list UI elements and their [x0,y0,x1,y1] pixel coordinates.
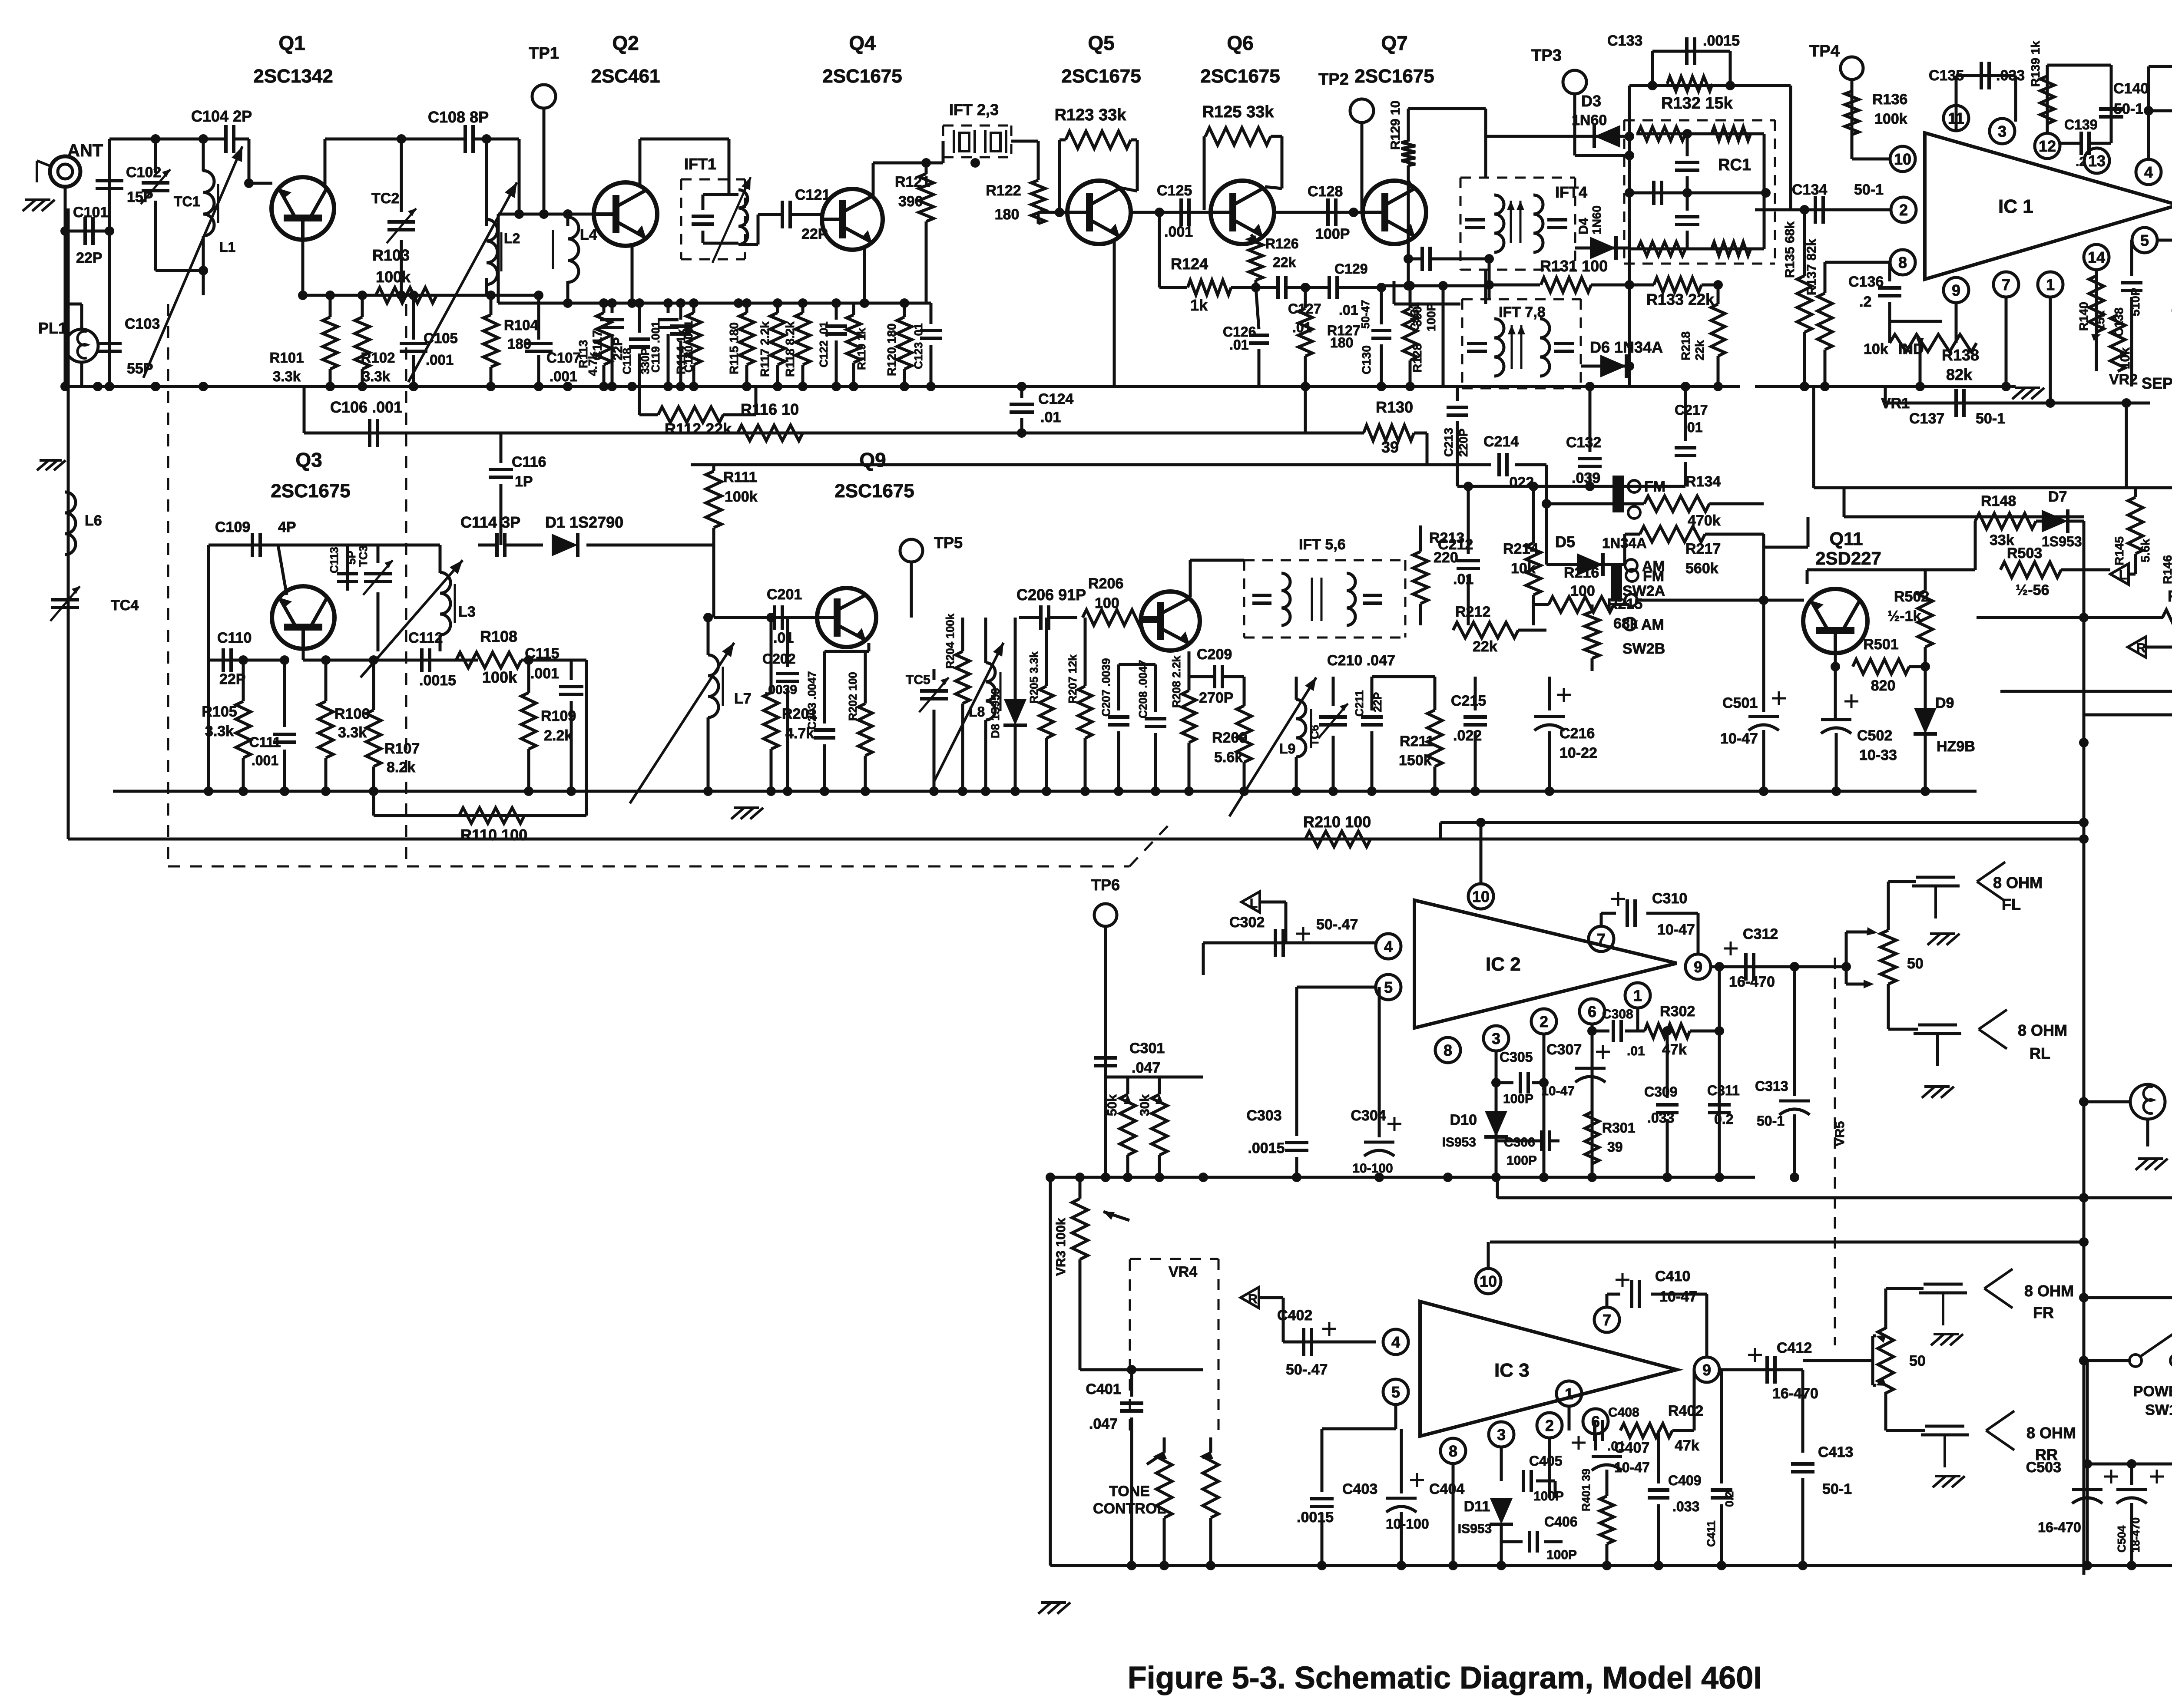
svg-text:R148: R148 [1981,493,2016,509]
svg-text:820: 820 [1871,677,1896,694]
svg-text:8: 8 [1898,254,1907,271]
svg-text:R139 1k: R139 1k [2029,41,2042,87]
svg-text:5: 5 [1384,978,1393,996]
svg-text:C120 .001: C120 .001 [682,320,695,373]
svg-text:7: 7 [2002,276,2010,294]
svg-text:R302: R302 [1660,1003,1695,1020]
svg-text:R: R [1248,1292,1258,1306]
svg-text:2SC1675: 2SC1675 [822,66,902,87]
svg-text:R126: R126 [1265,236,1299,251]
svg-text:C410: C410 [1655,1268,1690,1285]
svg-text:100k: 100k [1874,111,1907,127]
svg-text:C203 .0047: C203 .0047 [805,671,818,730]
svg-text:22P: 22P [76,250,103,266]
svg-text:D8 1S953: D8 1S953 [989,688,1002,738]
svg-text:3.3k: 3.3k [362,368,391,384]
svg-text:AM: AM [1641,617,1664,633]
svg-text:D4: D4 [1576,218,1591,235]
svg-text:C103: C103 [125,316,160,332]
svg-text:47k: 47k [1675,1437,1699,1454]
svg-text:IFT 5,6: IFT 5,6 [1299,536,1346,553]
svg-text:TP5: TP5 [934,534,963,552]
svg-text:100: 100 [1095,595,1119,611]
svg-text:R213: R213 [1429,530,1464,546]
svg-text:C501: C501 [1722,695,1758,711]
svg-text:TP1: TP1 [529,44,559,63]
svg-text:.01: .01 [1627,1044,1645,1058]
svg-text:R102: R102 [361,350,395,366]
svg-text:R115 180: R115 180 [727,322,741,374]
svg-text:.047: .047 [1089,1416,1118,1432]
svg-text:50-1: 50-1 [2114,101,2143,117]
svg-text:7: 7 [1603,1311,1611,1329]
svg-text:100k: 100k [376,268,411,286]
svg-text:4: 4 [1384,938,1393,955]
svg-text:L9: L9 [1279,741,1295,757]
svg-text:C307: C307 [1546,1041,1582,1058]
svg-text:C135: C135 [1929,67,1964,84]
svg-text:C206 91P: C206 91P [1016,586,1086,604]
svg-text:10-100: 10-100 [1352,1161,1393,1176]
svg-text:C139: C139 [2064,117,2098,132]
svg-text:9: 9 [1694,958,1702,976]
svg-text:L2: L2 [504,231,520,246]
svg-text:C106 .001: C106 .001 [330,398,402,416]
svg-text:.01: .01 [1040,409,1061,426]
svg-text:C404: C404 [1429,1481,1464,1497]
svg-text:C125: C125 [1157,182,1192,199]
svg-text:.0015: .0015 [1703,33,1740,49]
svg-text:16-470: 16-470 [1729,974,1775,990]
svg-text:2SC1675: 2SC1675 [1200,66,1280,87]
svg-text:R135 68k: R135 68k [1783,221,1797,278]
svg-text:9: 9 [1952,281,1960,299]
svg-text:16-470: 16-470 [2038,1520,2081,1535]
svg-text:CONTROL: CONTROL [1093,1500,1166,1517]
svg-text:R138: R138 [1942,346,1979,364]
svg-text:.01: .01 [1607,1439,1626,1454]
svg-text:C202: C202 [762,651,796,667]
svg-text:C118: C118 [620,348,633,374]
svg-text:3.3k: 3.3k [338,724,367,741]
svg-text:82k: 82k [1946,366,1973,383]
svg-text:RR: RR [2035,1446,2058,1464]
svg-text:8 OHM: 8 OHM [2024,1282,2074,1300]
svg-text:R503: R503 [2007,545,2042,562]
svg-text:Q7: Q7 [1381,32,1407,54]
svg-text:R206: R206 [1088,575,1123,592]
svg-text:R136: R136 [1872,91,1907,108]
svg-text:.0039: .0039 [765,683,797,697]
svg-text:.001: .001 [1164,224,1193,240]
svg-text:C401: C401 [1086,1381,1121,1397]
svg-text:50-47: 50-47 [1359,300,1372,329]
svg-text:.01: .01 [1229,337,1248,353]
svg-text:C109: C109 [215,519,250,535]
svg-text:39: 39 [1381,438,1399,456]
svg-text:7: 7 [1597,930,1606,948]
svg-text:10-47: 10-47 [1659,1288,1697,1305]
svg-text:1: 1 [2046,276,2055,294]
svg-text:C108 8P: C108 8P [428,108,489,126]
svg-text:C121: C121 [795,187,830,203]
svg-text:C209: C209 [1197,646,1232,663]
svg-text:R211: R211 [1400,733,1434,750]
svg-text:4.7k: 4.7k [586,352,599,376]
svg-text:C213: C213 [1442,428,1455,457]
svg-text:9: 9 [1702,1361,1711,1379]
svg-text:R122: R122 [986,182,1021,199]
svg-text:.0015: .0015 [419,672,456,689]
svg-text:.0015: .0015 [1297,1509,1334,1526]
svg-text:100k: 100k [482,668,517,686]
svg-text:C128: C128 [1308,183,1343,200]
svg-text:TC6: TC6 [1308,725,1321,746]
svg-text:C303: C303 [1246,1107,1281,1124]
svg-text:L7: L7 [734,690,752,707]
svg-text:2: 2 [1540,1013,1548,1031]
svg-text:.047: .047 [1132,1060,1160,1076]
svg-text:2SC1675: 2SC1675 [1061,66,1141,87]
svg-text:C123 .01: C123 .01 [912,323,925,369]
svg-text:R209: R209 [1212,730,1247,746]
svg-text:C107: C107 [546,350,581,366]
svg-text:IC 1: IC 1 [1998,196,2033,217]
svg-text:8.2k: 8.2k [387,759,415,776]
svg-text:RL: RL [2030,1044,2050,1062]
svg-text:.2: .2 [1859,294,1871,310]
svg-text:C112: C112 [408,630,443,646]
svg-text:C406: C406 [1544,1514,1578,1530]
svg-text:2.2k: 2.2k [544,727,573,744]
svg-text:1P: 1P [515,473,533,490]
svg-text:D7: D7 [2048,489,2067,505]
svg-text:Q6: Q6 [1227,32,1253,54]
svg-text:560k: 560k [1685,560,1718,577]
svg-text:IFT4: IFT4 [1555,183,1587,201]
svg-text:PL1: PL1 [38,319,67,337]
svg-text:100: 100 [1570,583,1595,599]
svg-text:R108: R108 [480,628,517,645]
svg-text:R112 22k: R112 22k [665,420,732,438]
svg-text:R204 100k: R204 100k [944,613,957,669]
svg-text:C310: C310 [1652,890,1687,907]
svg-text:VR5: VR5 [1833,1121,1847,1146]
svg-text:1k: 1k [1190,296,1208,314]
svg-text:IC 2: IC 2 [1486,954,1521,975]
svg-text:R107: R107 [384,740,420,757]
svg-text:8 OHM: 8 OHM [2026,1424,2076,1442]
svg-text:10: 10 [1480,1272,1497,1290]
svg-text:.0015: .0015 [1248,1140,1285,1156]
svg-text:4P: 4P [278,519,296,535]
svg-text:HZ9B: HZ9B [1937,738,1975,755]
svg-text:IFT1: IFT1 [684,155,716,173]
svg-text:50k: 50k [1105,1094,1119,1116]
svg-text:Q9: Q9 [859,449,886,471]
svg-text:1S953: 1S953 [2042,534,2082,549]
svg-text:C412: C412 [1777,1340,1812,1356]
svg-text:1: 1 [1633,987,1642,1004]
svg-text:R117 2.2k: R117 2.2k [758,321,771,377]
svg-text:½-1k: ½-1k [1887,608,1921,624]
svg-text:180: 180 [995,206,1020,223]
svg-text:C301: C301 [1129,1040,1165,1057]
svg-text:R205 3.3k: R205 3.3k [1027,651,1040,704]
svg-text:10-47: 10-47 [1720,730,1758,747]
svg-text:.01: .01 [1453,571,1473,588]
svg-text:R116 10: R116 10 [741,400,799,418]
svg-text:R149 100k: R149 100k [2168,587,2172,605]
svg-text:C130: C130 [1360,345,1373,374]
svg-text:2SD227: 2SD227 [1815,548,1881,568]
svg-text:10-100: 10-100 [1386,1516,1429,1532]
svg-text:R216: R216 [1564,565,1599,581]
svg-text:C215: C215 [1451,693,1486,709]
svg-text:C217: C217 [1675,402,1708,418]
svg-text:C405: C405 [1529,1453,1563,1469]
svg-text:.022: .022 [1453,727,1482,744]
svg-text:D5: D5 [1555,533,1575,551]
svg-text:8: 8 [1444,1041,1452,1059]
svg-text:C116: C116 [512,454,546,470]
svg-text:39: 39 [1607,1139,1623,1155]
svg-text:22P: 22P [219,671,246,687]
svg-text:100P: 100P [1424,303,1438,331]
svg-text:50: 50 [1907,955,1924,972]
svg-text:C140: C140 [2113,80,2149,97]
svg-text:270P: 270P [1199,690,1233,706]
svg-text:C133: C133 [1607,33,1642,49]
svg-text:D1 1S2790: D1 1S2790 [545,513,623,531]
svg-text:0.2: 0.2 [1723,1491,1736,1507]
svg-text:C111: C111 [249,734,281,750]
svg-text:C201: C201 [767,586,802,603]
svg-text:C132: C132 [1566,434,1601,451]
svg-text:R101: R101 [270,350,304,366]
svg-text:R129 10: R129 10 [1388,101,1403,150]
svg-text:IC 3: IC 3 [1494,1360,1530,1381]
svg-text:C211: C211 [1353,690,1366,717]
svg-text:8 OHM: 8 OHM [2018,1021,2067,1039]
svg-text:5: 5 [1391,1383,1400,1401]
svg-text:C413: C413 [1818,1444,1853,1460]
svg-text:3: 3 [1492,1030,1500,1047]
svg-text:TONE: TONE [1109,1483,1150,1500]
svg-text:1N60: 1N60 [1572,112,1607,129]
svg-text:VR2: VR2 [2109,371,2138,388]
svg-text:D11: D11 [1464,1498,1490,1515]
svg-text:3.3k: 3.3k [273,368,301,384]
svg-text:R401 39: R401 39 [1579,1469,1593,1511]
svg-text:3.3k: 3.3k [205,723,234,740]
svg-text:Figure 5-3. Schematic Diagram,: Figure 5-3. Schematic Diagram, Model 460… [1128,1661,1762,1695]
svg-text:IS953: IS953 [1458,1522,1492,1536]
svg-text:C216: C216 [1559,725,1595,742]
svg-text:R104: R104 [504,317,539,333]
svg-text:C313: C313 [1755,1078,1788,1094]
svg-text:4: 4 [2144,163,2153,181]
svg-text:50-1: 50-1 [1976,410,2005,427]
svg-text:50: 50 [1909,1353,1926,1369]
svg-text:2SC1675: 2SC1675 [271,480,350,502]
svg-text:15k: 15k [2093,311,2107,331]
svg-text:5: 5 [2140,231,2149,249]
svg-text:6: 6 [1588,1003,1596,1021]
svg-text:R123 33k: R123 33k [1055,106,1127,124]
svg-text:C403: C403 [1342,1481,1377,1497]
svg-text:R131 100: R131 100 [1540,257,1608,275]
svg-text:2SC1675: 2SC1675 [1354,66,1434,87]
svg-text:FL: FL [2002,895,2021,913]
svg-text:.01: .01 [773,630,794,646]
svg-text:5.6k: 5.6k [2139,538,2152,562]
svg-text:R128: R128 [1410,344,1424,373]
svg-text:50-1: 50-1 [1854,182,1884,198]
svg-text:SEP: SEP [2142,374,2172,392]
svg-text:.033: .033 [1672,1499,1699,1514]
svg-text:FM: FM [1643,568,1664,585]
svg-text:C113: C113 [328,547,341,573]
svg-text:.01: .01 [1339,302,1358,318]
svg-text:R132 15k: R132 15k [1661,94,1733,112]
svg-text:.033: .033 [1996,67,2025,84]
svg-text:R207 12k: R207 12k [1066,654,1079,704]
svg-text:L6: L6 [85,512,102,529]
svg-text:C411: C411 [1705,1520,1718,1547]
svg-text:10-47: 10-47 [1657,922,1695,938]
svg-text:50-1: 50-1 [1757,1113,1785,1129]
svg-text:1N60: 1N60 [1590,205,1603,235]
svg-text:10: 10 [1472,888,1490,905]
svg-text:50-1: 50-1 [1822,1481,1852,1497]
svg-text:R212: R212 [1455,604,1490,620]
svg-text:.001: .001 [252,753,278,768]
svg-text:C122 .01: C122 .01 [817,321,830,367]
svg-text:FM: FM [1644,479,1665,495]
svg-text:IFT 2,3: IFT 2,3 [949,101,999,119]
svg-text:0.2: 0.2 [1714,1111,1733,1127]
svg-text:4: 4 [1391,1333,1400,1351]
svg-text:R125 33k: R125 33k [1202,103,1275,121]
svg-text:D9: D9 [1935,695,1954,711]
svg-text:8 OHM: 8 OHM [1993,874,2043,892]
svg-text:390: 390 [1410,306,1424,327]
svg-text:100P: 100P [1546,1548,1577,1562]
svg-text:390: 390 [898,193,923,210]
svg-text:D3: D3 [1581,92,1601,110]
svg-text:D10: D10 [1450,1112,1477,1128]
svg-text:R214: R214 [1503,541,1538,557]
svg-text:C124: C124 [1038,391,1073,407]
svg-text:22k: 22k [1273,254,1296,270]
svg-text:C302: C302 [1229,914,1265,931]
svg-text:C129: C129 [1334,261,1368,277]
svg-text:C304: C304 [1351,1107,1386,1124]
svg-text:C502: C502 [1857,727,1892,744]
svg-text:R133 22k: R133 22k [1646,291,1715,308]
svg-text:R137 82k: R137 82k [1804,239,1819,295]
svg-text:10-47: 10-47 [1614,1460,1650,1475]
svg-text:R145: R145 [2112,536,2126,565]
svg-text:C306: C306 [1504,1135,1535,1150]
svg-text:R103: R103 [372,246,410,264]
svg-text:Q5: Q5 [1088,32,1114,54]
svg-text:C309: C309 [1644,1084,1678,1100]
svg-text:Q4: Q4 [849,32,876,54]
svg-text:R111: R111 [723,469,757,486]
svg-text:C208 .0047: C208 .0047 [1136,660,1149,718]
svg-text:R118 8.2k: R118 8.2k [783,321,797,377]
svg-text:D6 1N34A: D6 1N34A [1590,338,1663,356]
svg-text:150k: 150k [1399,752,1432,769]
svg-text:.2: .2 [2076,155,2086,169]
svg-text:Q3: Q3 [295,449,322,471]
svg-text:2SC1342: 2SC1342 [253,66,333,87]
svg-text:C137: C137 [1909,410,1944,427]
svg-text:30k: 30k [1138,1094,1152,1116]
svg-text:SW2A: SW2A [1622,583,1665,599]
svg-text:3: 3 [1497,1426,1506,1444]
svg-text:16-470: 16-470 [1772,1385,1818,1402]
svg-text:Q11: Q11 [1829,529,1863,549]
svg-text:TC5: TC5 [906,673,930,687]
svg-text:2SC1675: 2SC1675 [834,480,914,502]
svg-text:R120 180: R120 180 [885,324,898,376]
svg-text:8: 8 [1449,1442,1457,1460]
svg-text:L1: L1 [219,239,235,255]
svg-text:VR3 100k: VR3 100k [1054,1218,1068,1276]
svg-text:R402: R402 [1668,1403,1703,1419]
svg-text:100P: 100P [1503,1092,1533,1106]
svg-text:TP3: TP3 [1531,46,1562,65]
svg-text:C308: C308 [1602,1007,1633,1021]
svg-text:TP2: TP2 [1318,70,1349,89]
svg-text:TC2: TC2 [371,190,399,207]
svg-text:C207 .0039: C207 .0039 [1099,658,1112,717]
svg-text:C214: C214 [1483,433,1519,450]
svg-text:.001: .001 [550,368,577,384]
svg-text:C115: C115 [525,645,559,662]
svg-text:5P: 5P [345,551,358,565]
svg-text:220: 220 [1434,549,1458,566]
svg-text:Q2: Q2 [612,32,639,54]
svg-text:2: 2 [1545,1417,1554,1434]
svg-text:.001: .001 [530,665,559,682]
svg-text:TP6: TP6 [1091,876,1120,894]
svg-text:22k: 22k [1473,638,1497,655]
svg-text:SW1: SW1 [2145,1402,2172,1418]
svg-text:100P: 100P [1506,1153,1537,1168]
svg-text:IFT 7,8: IFT 7,8 [1499,304,1546,320]
svg-text:R121: R121 [895,174,930,190]
svg-text:R130: R130 [1376,398,1413,416]
svg-text:5.6k: 5.6k [1214,749,1243,766]
svg-text:FR: FR [2033,1304,2054,1321]
svg-text:C114 3P: C114 3P [460,513,520,531]
svg-text:L: L [1250,896,1258,911]
svg-text:10k: 10k [1864,341,1888,357]
svg-text:14: 14 [2088,248,2105,266]
svg-text:R208 2.2k: R208 2.2k [1170,655,1183,708]
svg-text:TC1: TC1 [174,194,200,209]
svg-text:C110: C110 [217,630,252,646]
svg-text:C402: C402 [1277,1307,1312,1324]
svg-text:180: 180 [1330,335,1353,350]
svg-text:R210 100: R210 100 [1303,813,1371,831]
svg-text:R502: R502 [1894,588,1929,605]
svg-text:½-56: ½-56 [2016,582,2049,598]
